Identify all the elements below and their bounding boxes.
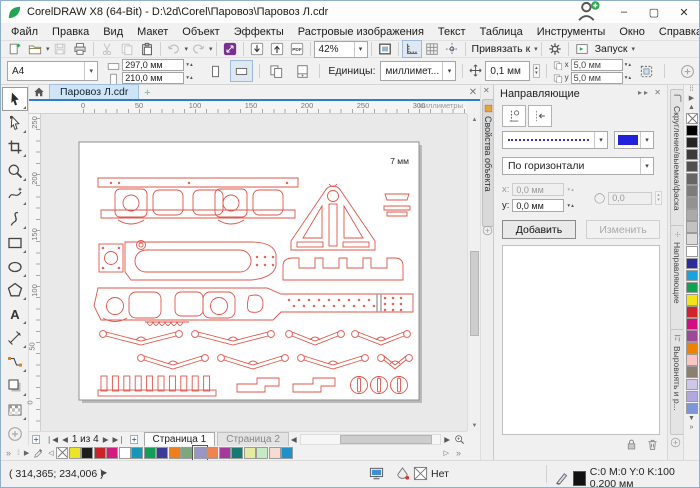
page: [79, 142, 419, 400]
page-tab-2[interactable]: Страница 2: [217, 432, 289, 446]
document-page-svg: 7 мм: [41, 114, 467, 431]
close-docker-icon[interactable]: ✕: [483, 86, 490, 95]
docker-title: Направляющие: [500, 88, 580, 100]
fill-value: Нет: [431, 468, 449, 480]
color-swatch[interactable]: [686, 161, 698, 173]
snap-to-guidelines-toggle[interactable]: [528, 105, 552, 127]
flyout-corner-icon: [23, 274, 26, 277]
palette-flyout-icon[interactable]: ▶: [689, 94, 694, 103]
flyout-corner-icon: [23, 202, 26, 205]
color-swatch[interactable]: [686, 197, 698, 209]
show-rulers-button[interactable]: [402, 40, 422, 58]
minimize-button[interactable]: –: [609, 2, 639, 23]
duplicate-x-icon: [553, 60, 563, 70]
dup-x-label: x: [565, 60, 569, 69]
outline-status[interactable]: C:0 M:0 Y:0 K:100 0,200 мм: [554, 466, 699, 488]
menu-item-Справка[interactable]: Справка: [652, 24, 700, 40]
color-swatch[interactable]: [144, 447, 156, 459]
guide-line-style-combo[interactable]: ▾: [502, 131, 608, 149]
align-tab-icon: [673, 334, 682, 343]
portrait-button[interactable]: [205, 60, 227, 82]
menu-item-Эффекты[interactable]: Эффекты: [227, 24, 291, 40]
copy-button: [117, 40, 137, 58]
palette-scroll-right-icon[interactable]: ▷: [442, 449, 451, 457]
object-properties-icon: [484, 104, 493, 113]
add-page-icon[interactable]: [29, 434, 44, 445]
standard-toolbar: ▾▾▾PDF42%▾Привязать к▾Запуск▾: [1, 41, 699, 58]
fullscreen-preview-button[interactable]: [375, 40, 395, 58]
color-swatch[interactable]: [686, 246, 698, 258]
palette-expand-icon[interactable]: »: [451, 448, 467, 458]
maximize-button[interactable]: ▢: [639, 2, 669, 23]
print-button[interactable]: [70, 40, 90, 58]
palette-drag-handle[interactable]: ⁞⁞: [690, 85, 694, 94]
guides-list[interactable]: [502, 245, 660, 435]
open-folder-button[interactable]: [25, 40, 45, 58]
add-tool-icon[interactable]: [2, 422, 28, 446]
stepper-icon[interactable]: ▾▴: [186, 75, 194, 81]
eyedropper-icon[interactable]: [31, 448, 46, 459]
show-guidelines-toggle[interactable]: [502, 105, 526, 127]
color-swatch[interactable]: [106, 447, 118, 459]
menu-bar: ФайлПравкаВидМакетОбъектЭффектыРастровые…: [1, 23, 699, 41]
color-swatch[interactable]: [686, 185, 698, 197]
duplicate-x-field[interactable]: 5,0 мм: [571, 59, 623, 71]
menu-item-Текст[interactable]: Текст: [431, 24, 473, 40]
chevron-down-icon[interactable]: ▾: [594, 132, 607, 148]
stepper-icon[interactable]: ▾▴: [625, 75, 633, 81]
current-page-button[interactable]: [291, 60, 313, 82]
color-swatch[interactable]: [686, 366, 698, 378]
color-swatch[interactable]: [686, 221, 698, 233]
pdf-button[interactable]: PDF: [287, 40, 307, 58]
page-note: 7 мм: [390, 156, 409, 166]
palette-expand-icon[interactable]: »: [690, 423, 694, 432]
corel-draw-window: CorelDRAW X8 (64-Bit) - D:\2d\Corel\Паро…: [0, 0, 700, 488]
page-width-field[interactable]: 297,0 мм: [122, 59, 184, 71]
rectangle-tool[interactable]: [2, 231, 28, 255]
dup-y-label: y: [565, 73, 569, 82]
docker-tab-strip-right: Скругление/выемка/фаскаНаправляющиеВыров…: [667, 85, 683, 460]
import-button[interactable]: [247, 40, 267, 58]
menu-item-Вид[interactable]: Вид: [96, 24, 130, 40]
first-page-icon[interactable]: ❘◀: [44, 435, 60, 444]
redo-button: [188, 40, 208, 58]
horizontal-scroll-thumb[interactable]: [340, 435, 432, 444]
toolbar-separator: [371, 42, 372, 56]
freehand-tool[interactable]: [2, 183, 28, 207]
color-swatch[interactable]: [686, 209, 698, 221]
nudge-icon: [469, 64, 482, 78]
cursor-coordinates: ( 314,365; 234,006 ): [9, 468, 104, 480]
search-content-button[interactable]: [220, 40, 240, 58]
stepper-icon[interactable]: ▾▴: [186, 62, 194, 68]
flyout-corner-icon: [23, 130, 26, 133]
new-document-button[interactable]: [5, 40, 25, 58]
title-bar: CorelDRAW X8 (64-Bit) - D:\2d\Corel\Паро…: [1, 1, 699, 24]
color-swatch[interactable]: [81, 447, 93, 459]
flyout-corner-icon: [23, 321, 26, 324]
outline-color-chip: [573, 471, 586, 486]
launch-icon[interactable]: [572, 40, 592, 58]
landscape-button[interactable]: [230, 60, 252, 82]
add-guide-button[interactable]: Добавить: [502, 220, 576, 239]
page-height-icon: [107, 73, 120, 83]
connector-tool[interactable]: [2, 350, 28, 374]
orientation-value: По горизонтали: [503, 160, 640, 172]
main-color-palette: ⁞⁞▶▲▼»: [683, 85, 699, 460]
page-height-field[interactable]: 210,0 мм: [122, 72, 184, 84]
chevron-down-icon[interactable]: ▾: [632, 45, 636, 53]
y-field[interactable]: 0,0 мм: [512, 199, 564, 212]
page-navigation-bar: ❘◀ ◀ 1 из 4 ▶ ▶❘ Страница 1Страница 2 ◀ …: [29, 431, 467, 446]
color-swatch[interactable]: [686, 294, 698, 306]
status-flyout-icon[interactable]: ▶: [101, 468, 107, 477]
outline-value: C:0 M:0 Y:0 K:100 0,200 мм: [590, 466, 699, 488]
color-swatch[interactable]: [256, 447, 268, 459]
add-page-icon[interactable]: [127, 434, 142, 445]
duplicate-y-icon: [553, 73, 563, 83]
color-swatch[interactable]: [686, 149, 698, 161]
docker-header-icons[interactable]: ▸▸ ✕: [638, 88, 663, 97]
color-swatch[interactable]: [219, 447, 231, 459]
svg-text:PDF: PDF: [292, 47, 302, 53]
tab-label: Выровнять и р...: [672, 346, 682, 411]
account-icon[interactable]: [575, 2, 601, 23]
flyout-corner-icon: [23, 345, 26, 348]
page-counter: 1 из 4: [72, 434, 99, 445]
ruler-tick-label: 100: [189, 101, 202, 110]
document-palette: » ⁞⁞ ▶ ◁ ▷ »: [1, 446, 467, 460]
stepper-icon[interactable]: ▴▾: [533, 64, 540, 78]
color-swatch[interactable]: [686, 403, 698, 415]
color-swatch[interactable]: [686, 306, 698, 318]
color-swatch[interactable]: [156, 447, 168, 459]
color-swatch[interactable]: [686, 137, 698, 149]
color-swatch[interactable]: [686, 282, 698, 294]
undo-button: [164, 40, 184, 58]
next-page-icon[interactable]: ▶: [101, 435, 111, 444]
tab-Направляющие[interactable]: Направляющие: [670, 225, 684, 331]
quick-zoom-icon[interactable]: [452, 434, 467, 445]
document-tab-bar: Паровоз Л.cdr + ✕: [29, 85, 480, 101]
palette-flyout-icon[interactable]: ▶: [22, 449, 31, 457]
tab-Скругление/выемка/фаска[interactable]: Скругление/выемка/фаска: [670, 89, 684, 231]
export-button[interactable]: [267, 40, 287, 58]
ruler-tick-label: 250: [357, 101, 370, 110]
chevron-down-icon[interactable]: ▾: [354, 42, 367, 57]
drop-shadow-tool[interactable]: [2, 374, 28, 398]
shape-tool[interactable]: [2, 111, 28, 135]
ellipse-tool[interactable]: [2, 255, 28, 279]
color-swatch[interactable]: [244, 447, 256, 459]
flyout-corner-icon: [23, 297, 26, 300]
color-swatch[interactable]: [181, 447, 193, 459]
flyout-corner-icon: [23, 393, 26, 396]
no-color-swatch[interactable]: [686, 113, 698, 125]
color-swatch[interactable]: [269, 447, 281, 459]
color-swatch[interactable]: [119, 447, 131, 459]
toolbar-separator: [160, 42, 161, 56]
no-color-swatch[interactable]: [56, 447, 68, 459]
ruler-tick-label: 200: [301, 101, 314, 110]
color-swatch[interactable]: [686, 330, 698, 342]
ruler-tick-label: 0: [26, 400, 35, 404]
color-swatch[interactable]: [686, 258, 698, 270]
chevron-down-icon[interactable]: ▾: [84, 62, 97, 80]
menu-item-Макет[interactable]: Макет: [130, 24, 175, 40]
stepper-icon[interactable]: ▾▴: [625, 62, 633, 68]
toolbar-separator: [465, 42, 466, 56]
flyout-corner-icon: [23, 417, 26, 420]
page-tab-1[interactable]: Страница 1: [144, 432, 216, 446]
flyout-corner-icon: [23, 106, 26, 109]
flyout-corner-icon: [23, 369, 26, 372]
zoom-level-value: 42%: [315, 44, 354, 55]
text-tool[interactable]: A: [2, 302, 28, 326]
new-tab-button[interactable]: +: [139, 87, 155, 99]
palette-scroll-down-icon[interactable]: ▼: [688, 414, 695, 423]
chevron-down-icon[interactable]: ▾: [640, 158, 653, 174]
color-swatch[interactable]: [686, 391, 698, 403]
app-icon: [7, 5, 22, 20]
ruler-tick-label: 150: [30, 228, 39, 241]
page-tabs: Страница 1Страница 2: [142, 432, 289, 446]
color-swatch[interactable]: [686, 233, 698, 245]
flyout-corner-icon: [23, 154, 26, 157]
menu-item-Таблица[interactable]: Таблица: [473, 24, 530, 40]
snap-to-label[interactable]: Привязать к: [472, 43, 531, 55]
chevron-down-icon[interactable]: ▾: [534, 45, 538, 53]
chevron-down-icon[interactable]: ▾: [640, 132, 653, 148]
tab-label: Скругление/выемка/фаска: [672, 106, 682, 211]
cut-button: [97, 40, 117, 58]
document-tab-label: Паровоз Л.cdr: [60, 86, 128, 98]
toolbar-separator: [93, 42, 94, 56]
flyout-corner-icon: [23, 226, 26, 229]
ruler-tick-label: 50: [28, 342, 37, 350]
close-document-icon[interactable]: ✕: [466, 87, 480, 98]
paper-size-combo[interactable]: A4 ▾: [7, 61, 98, 81]
toolbar-separator: [541, 42, 542, 56]
units-label: Единицы:: [328, 65, 375, 77]
color-swatch[interactable]: [686, 318, 698, 330]
paper-size-value: A4: [8, 66, 84, 77]
nudge-field[interactable]: 0,1 мм: [485, 61, 530, 81]
lock-icon[interactable]: [625, 438, 638, 451]
add-docker-icon[interactable]: [670, 437, 681, 448]
guide-color-combo[interactable]: ▾: [614, 131, 654, 149]
guidelines-tab-icon: [673, 230, 682, 239]
horizontal-scrollbar[interactable]: [300, 434, 442, 445]
no-fill-swatch-icon: [413, 466, 428, 481]
toolbox-overflow-icon[interactable]: »: [1, 448, 17, 458]
color-swatch[interactable]: [686, 173, 698, 185]
color-swatch[interactable]: [281, 447, 293, 459]
guidelines-docker: Направляющие ▸▸ ✕ ▾ ▾ По горизонтали ▾ x…: [493, 85, 667, 460]
transparency-tool[interactable]: [2, 398, 28, 422]
x-field: 0,0 мм: [512, 183, 564, 196]
toolbar-separator: [243, 42, 244, 56]
ruler-tick-label: 150: [245, 101, 258, 110]
artistic-media-tool[interactable]: [2, 207, 28, 231]
y-label: y:: [502, 200, 509, 211]
property-bar: A4 ▾ 297,0 мм ▾▴ 210,0 мм ▾▴ Единицы: ми…: [1, 58, 699, 85]
show-grid-button[interactable]: [422, 40, 442, 58]
window-title: CorelDRAW X8 (64-Bit) - D:\2d\Corel\Паро…: [27, 6, 328, 18]
add-docker-icon[interactable]: [482, 225, 493, 236]
vertical-scrollbar[interactable]: ▲ ▼: [467, 114, 480, 431]
trash-icon[interactable]: [646, 438, 659, 451]
scroll-right-icon[interactable]: ▶: [442, 435, 452, 444]
units-value: миллимет...: [381, 66, 442, 77]
document-swatches: [56, 447, 294, 459]
add-control-icon[interactable]: [677, 60, 699, 82]
paste-button[interactable]: [137, 40, 157, 58]
polygon-tool[interactable]: [2, 279, 28, 303]
toolbar-separator: [216, 42, 217, 56]
stepper-icon[interactable]: ▾▴: [567, 203, 575, 209]
color-swatch[interactable]: [686, 342, 698, 354]
color-swatch[interactable]: [169, 447, 181, 459]
units-combo[interactable]: миллимет... ▾: [380, 61, 456, 81]
color-swatch[interactable]: [686, 270, 698, 282]
crop-tool[interactable]: [2, 135, 28, 159]
svg-text:A: A: [10, 307, 20, 322]
menu-item-Окно[interactable]: Окно: [612, 24, 652, 40]
menu-item-Файл[interactable]: Файл: [4, 24, 45, 40]
flyout-corner-icon: [23, 178, 26, 181]
color-swatch[interactable]: [94, 447, 106, 459]
color-swatch[interactable]: [206, 447, 218, 459]
document-tab[interactable]: Паровоз Л.cdr: [49, 84, 139, 99]
duplicate-y-field[interactable]: 5,0 мм: [571, 72, 623, 84]
ruler-tick-label: 50: [135, 101, 143, 110]
color-swatch[interactable]: [686, 354, 698, 366]
color-chip: [618, 135, 638, 145]
ruler-tick-label: 200: [30, 172, 39, 185]
toolbar-separator: [568, 42, 569, 56]
ruler-tick-label: 100: [30, 284, 39, 297]
status-bar: ( 314,365; 234,006 ) ▶ Нет C:0 M:0 Y:0 K…: [1, 460, 699, 488]
nudge-value: 0,1 мм: [486, 66, 529, 77]
angle-field: 0,0: [608, 192, 652, 205]
menu-item-Растровые изображения[interactable]: Растровые изображения: [291, 24, 431, 40]
last-page-icon[interactable]: ▶❘: [110, 435, 126, 444]
palette-drag-handle[interactable]: ⁞⁞: [17, 450, 19, 457]
launch-label[interactable]: Запуск: [595, 43, 628, 55]
home-icon[interactable]: [29, 85, 49, 99]
x-label: x:: [502, 184, 509, 195]
guide-orientation-select[interactable]: По горизонтали ▾: [502, 157, 654, 175]
color-swatch[interactable]: [231, 447, 243, 459]
all-pages-button[interactable]: [266, 60, 288, 82]
page-width-icon: [107, 60, 120, 70]
close-button[interactable]: ✕: [669, 2, 699, 23]
ruler-tick-label: 0: [81, 101, 85, 110]
chevron-down-icon[interactable]: ▾: [442, 62, 455, 80]
dashed-line-preview: [508, 139, 589, 141]
color-swatch[interactable]: [69, 447, 81, 459]
tab-label: Свойства объекта: [483, 116, 493, 192]
color-swatch[interactable]: [131, 447, 143, 459]
palette-scroll-up-icon[interactable]: ▲: [688, 103, 695, 112]
options-gear-button[interactable]: [545, 40, 565, 58]
color-swatch[interactable]: [686, 379, 698, 391]
angle-icon: ◯: [594, 193, 605, 204]
tab-label: Направляющие: [672, 242, 682, 304]
ruler-tick-label: 250: [30, 116, 39, 129]
toolbar-separator: [398, 42, 399, 56]
fill-status[interactable]: Нет: [395, 466, 449, 481]
stepper-icon: ▾▴: [567, 187, 575, 193]
chevron-down-icon: ▾: [209, 45, 213, 53]
save-button: [50, 40, 70, 58]
display-color-icon[interactable]: [369, 466, 384, 481]
treat-as-filled-button[interactable]: [635, 60, 657, 82]
vertical-ruler[interactable]: 250200150100500: [29, 114, 41, 431]
flyout-corner-icon: [23, 250, 26, 253]
palette-scroll-left-icon[interactable]: ◁: [46, 449, 55, 457]
vertical-scroll-thumb[interactable]: [470, 251, 479, 336]
fillet-tab-icon: [673, 94, 682, 103]
color-swatch[interactable]: [194, 447, 206, 459]
scroll-left-icon[interactable]: ◀: [289, 435, 299, 444]
color-swatch[interactable]: [686, 125, 698, 137]
zoom-tool[interactable]: [2, 159, 28, 183]
menu-item-Инструменты[interactable]: Инструменты: [530, 24, 613, 40]
prev-page-icon[interactable]: ◀: [60, 435, 70, 444]
menu-item-Объект[interactable]: Объект: [175, 24, 226, 40]
toolbar-separator: [310, 42, 311, 56]
drawing-canvas[interactable]: 7 мм: [41, 114, 467, 431]
outline-pen-icon: [554, 471, 569, 486]
edit-guide-button: Изменить: [586, 220, 660, 239]
dimension-tool[interactable]: [2, 326, 28, 350]
tab-Выровнять и р...[interactable]: Выровнять и р...: [670, 329, 684, 435]
fill-bucket-icon: [395, 466, 410, 481]
horizontal-ruler[interactable]: 050100150200250300миллиметры: [29, 101, 467, 114]
menu-item-Правка[interactable]: Правка: [45, 24, 96, 40]
show-guidelines-button[interactable]: [442, 40, 462, 58]
pick-tool[interactable]: [2, 87, 28, 111]
ruler-units-label: миллиметры: [419, 101, 463, 110]
zoom-level-combo[interactable]: 42%▾: [314, 41, 368, 58]
docker-tab-strip-left: ✕ Свойства объекта: [480, 85, 493, 460]
